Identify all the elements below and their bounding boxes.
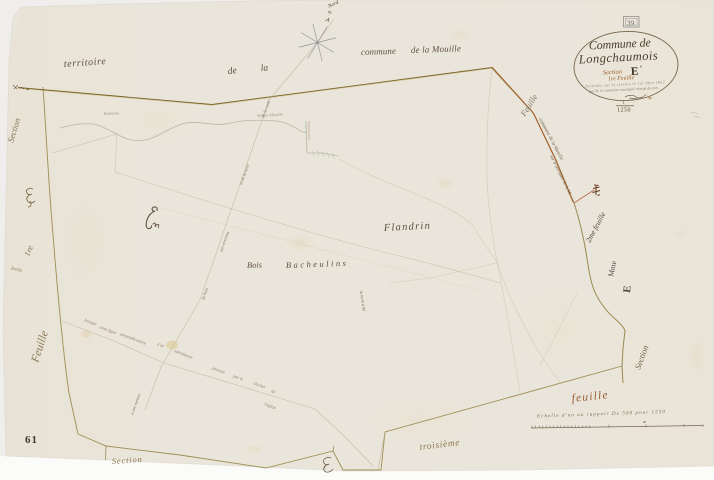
svg-text:la: la <box>260 63 269 74</box>
svg-text:Section: Section <box>111 454 142 466</box>
svg-text:de la Mouille: de la Mouille <box>411 43 461 55</box>
svg-text:Ruisseau: Ruisseau <box>103 110 119 116</box>
svg-text:1: 1 <box>623 100 625 105</box>
svg-text:39: 39 <box>627 18 635 27</box>
svg-text:commune: commune <box>361 46 396 57</box>
svg-text:61: 61 <box>25 434 38 446</box>
svg-text:Bacheulins: Bacheulins <box>286 258 347 270</box>
svg-text:1250: 1250 <box>617 108 631 114</box>
svg-text:Bois: Bois <box>247 259 263 270</box>
svg-text:E: E <box>622 285 634 293</box>
svg-text:e: e <box>640 64 642 69</box>
svg-text:de: de <box>227 66 237 77</box>
